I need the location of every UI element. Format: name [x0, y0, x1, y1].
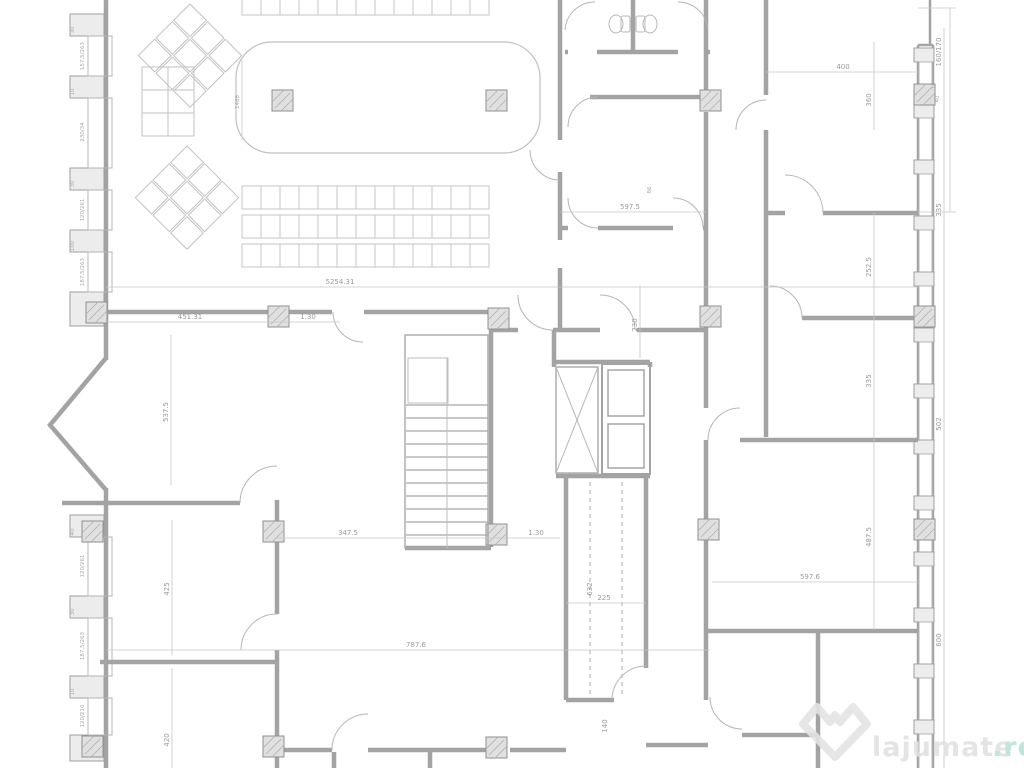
window-label: 120/261 [80, 199, 86, 222]
left-wall-windows [88, 36, 112, 735]
dim-seg-3: 487.5 [865, 527, 873, 547]
dim-room-e-height: 420 [163, 733, 171, 746]
floor-plan-page: 157,5/263 230/34 120/261 187,5/263 120/2… [0, 0, 1024, 768]
window-label: 120/261 [80, 555, 86, 578]
dim-total-width: 5254.31 [326, 278, 355, 286]
structural-columns [82, 84, 935, 758]
dim-wc-note: 86 [647, 186, 653, 193]
window-label: 187,5/263 [80, 257, 86, 286]
door-arcs [240, 2, 823, 750]
dim-corridor-width: 230 [631, 318, 639, 331]
right-exterior-wall [914, 0, 934, 768]
watermark: lajumate .ro [803, 707, 1024, 763]
dim-door-b: 1.30 [528, 529, 544, 537]
tick-label: 100 [70, 240, 76, 251]
left-exterior-wall: 157,5/263 230/34 120/261 187,5/263 120/2… [50, 0, 112, 768]
dim-door-c: 140 [601, 719, 609, 732]
tick-label: 10 [70, 688, 76, 695]
dim-room-b-width: 597.6 [800, 573, 821, 581]
dining-furniture [135, 0, 540, 267]
window-label: 230/34 [80, 122, 86, 142]
window-label: 187,5/263 [80, 631, 86, 660]
dim-out-3: 600 [935, 633, 943, 646]
elevator-shaft [556, 364, 650, 474]
escalator-shaft [590, 482, 622, 694]
tick-label: 40 [70, 528, 76, 535]
left-wall-labels: 157,5/263 230/34 120/261 187,5/263 120/2… [70, 26, 86, 727]
dim-room-a-width: 451.31 [178, 313, 203, 321]
dim-seg-1: 252.5 [865, 257, 873, 277]
dim-out-2: 502 [935, 417, 943, 430]
dim-out-1: 335 [935, 203, 943, 216]
toilet-tank [621, 16, 630, 32]
watermark-tld: .ro [992, 732, 1024, 763]
dim-door-a: 1.30 [300, 313, 316, 321]
shaft-cross-brace [556, 367, 598, 473]
travel-dashed-lines [590, 482, 622, 694]
watermark-heart-logo-icon [803, 707, 867, 757]
dim-seg-2: 335 [865, 374, 873, 387]
dim-out-top: 160/170 [935, 37, 943, 66]
window-label: 120/210 [80, 704, 86, 727]
dim-shaft-width: 225 [597, 594, 610, 602]
elevator-car [608, 370, 644, 416]
dim-table-length: 1488 [235, 95, 241, 109]
dimension-labels: 5254.31 451.31 1.30 537.5 347.5 1.30 787… [162, 37, 943, 746]
dim-tick-b: 40 [935, 95, 941, 102]
stair-landing [408, 358, 448, 403]
dim-wc-width: 597.5 [620, 203, 640, 211]
dim-room-c-width: 400 [836, 63, 849, 71]
dim-shaft-height: 632 [586, 582, 594, 595]
floor-plan: 157,5/263 230/34 120/261 187,5/263 120/2… [0, 0, 1024, 768]
dim-hall-width: 787.6 [406, 641, 427, 649]
staircase [405, 335, 488, 548]
dim-stair-width: 347.5 [338, 529, 358, 537]
dim-room-c-height: 360 [865, 93, 873, 106]
tick-label: 30 [70, 608, 76, 615]
tick-label: 10 [70, 88, 76, 95]
dim-room-d-height: 425 [163, 582, 171, 595]
toilet-tank [636, 16, 645, 32]
tick-label: 30 [70, 180, 76, 187]
dim-tick-a: 16 [931, 82, 937, 89]
dim-room-a-height: 537.5 [162, 402, 170, 422]
dimension-lines [106, 8, 956, 768]
tick-label: 30 [70, 26, 76, 33]
left-wall-pilasters [70, 14, 104, 761]
interior-walls [62, 0, 918, 768]
side-tables [142, 67, 194, 136]
window-label: 157,5/263 [80, 41, 86, 70]
elevator-car [608, 424, 644, 468]
